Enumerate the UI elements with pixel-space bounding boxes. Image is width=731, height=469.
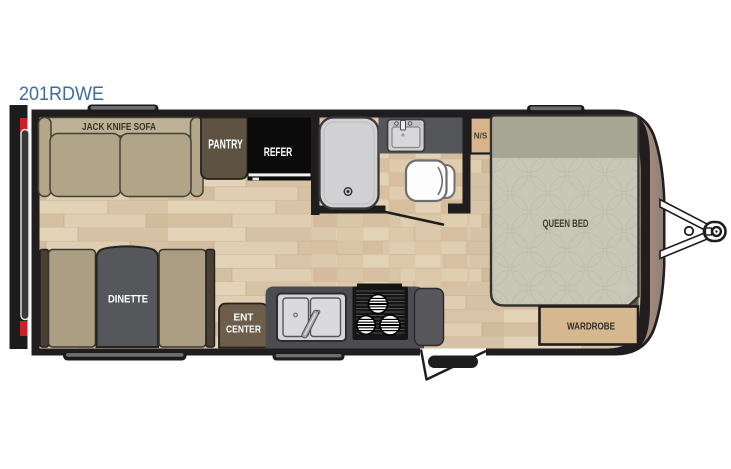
svg-text:CENTER: CENTER (226, 325, 262, 336)
svg-text:PANTRY: PANTRY (208, 137, 243, 152)
svg-text:QUEEN BED: QUEEN BED (543, 218, 589, 230)
svg-text:201RDWE: 201RDWE (19, 83, 104, 105)
svg-text:JACK KNIFE SOFA: JACK KNIFE SOFA (82, 121, 156, 133)
svg-text:N/S: N/S (474, 131, 488, 141)
svg-text:ENT: ENT (234, 313, 254, 324)
svg-text:WARDROBE: WARDROBE (567, 321, 615, 333)
svg-text:REFER: REFER (264, 147, 293, 159)
svg-text:DINETTE: DINETTE (108, 294, 148, 306)
